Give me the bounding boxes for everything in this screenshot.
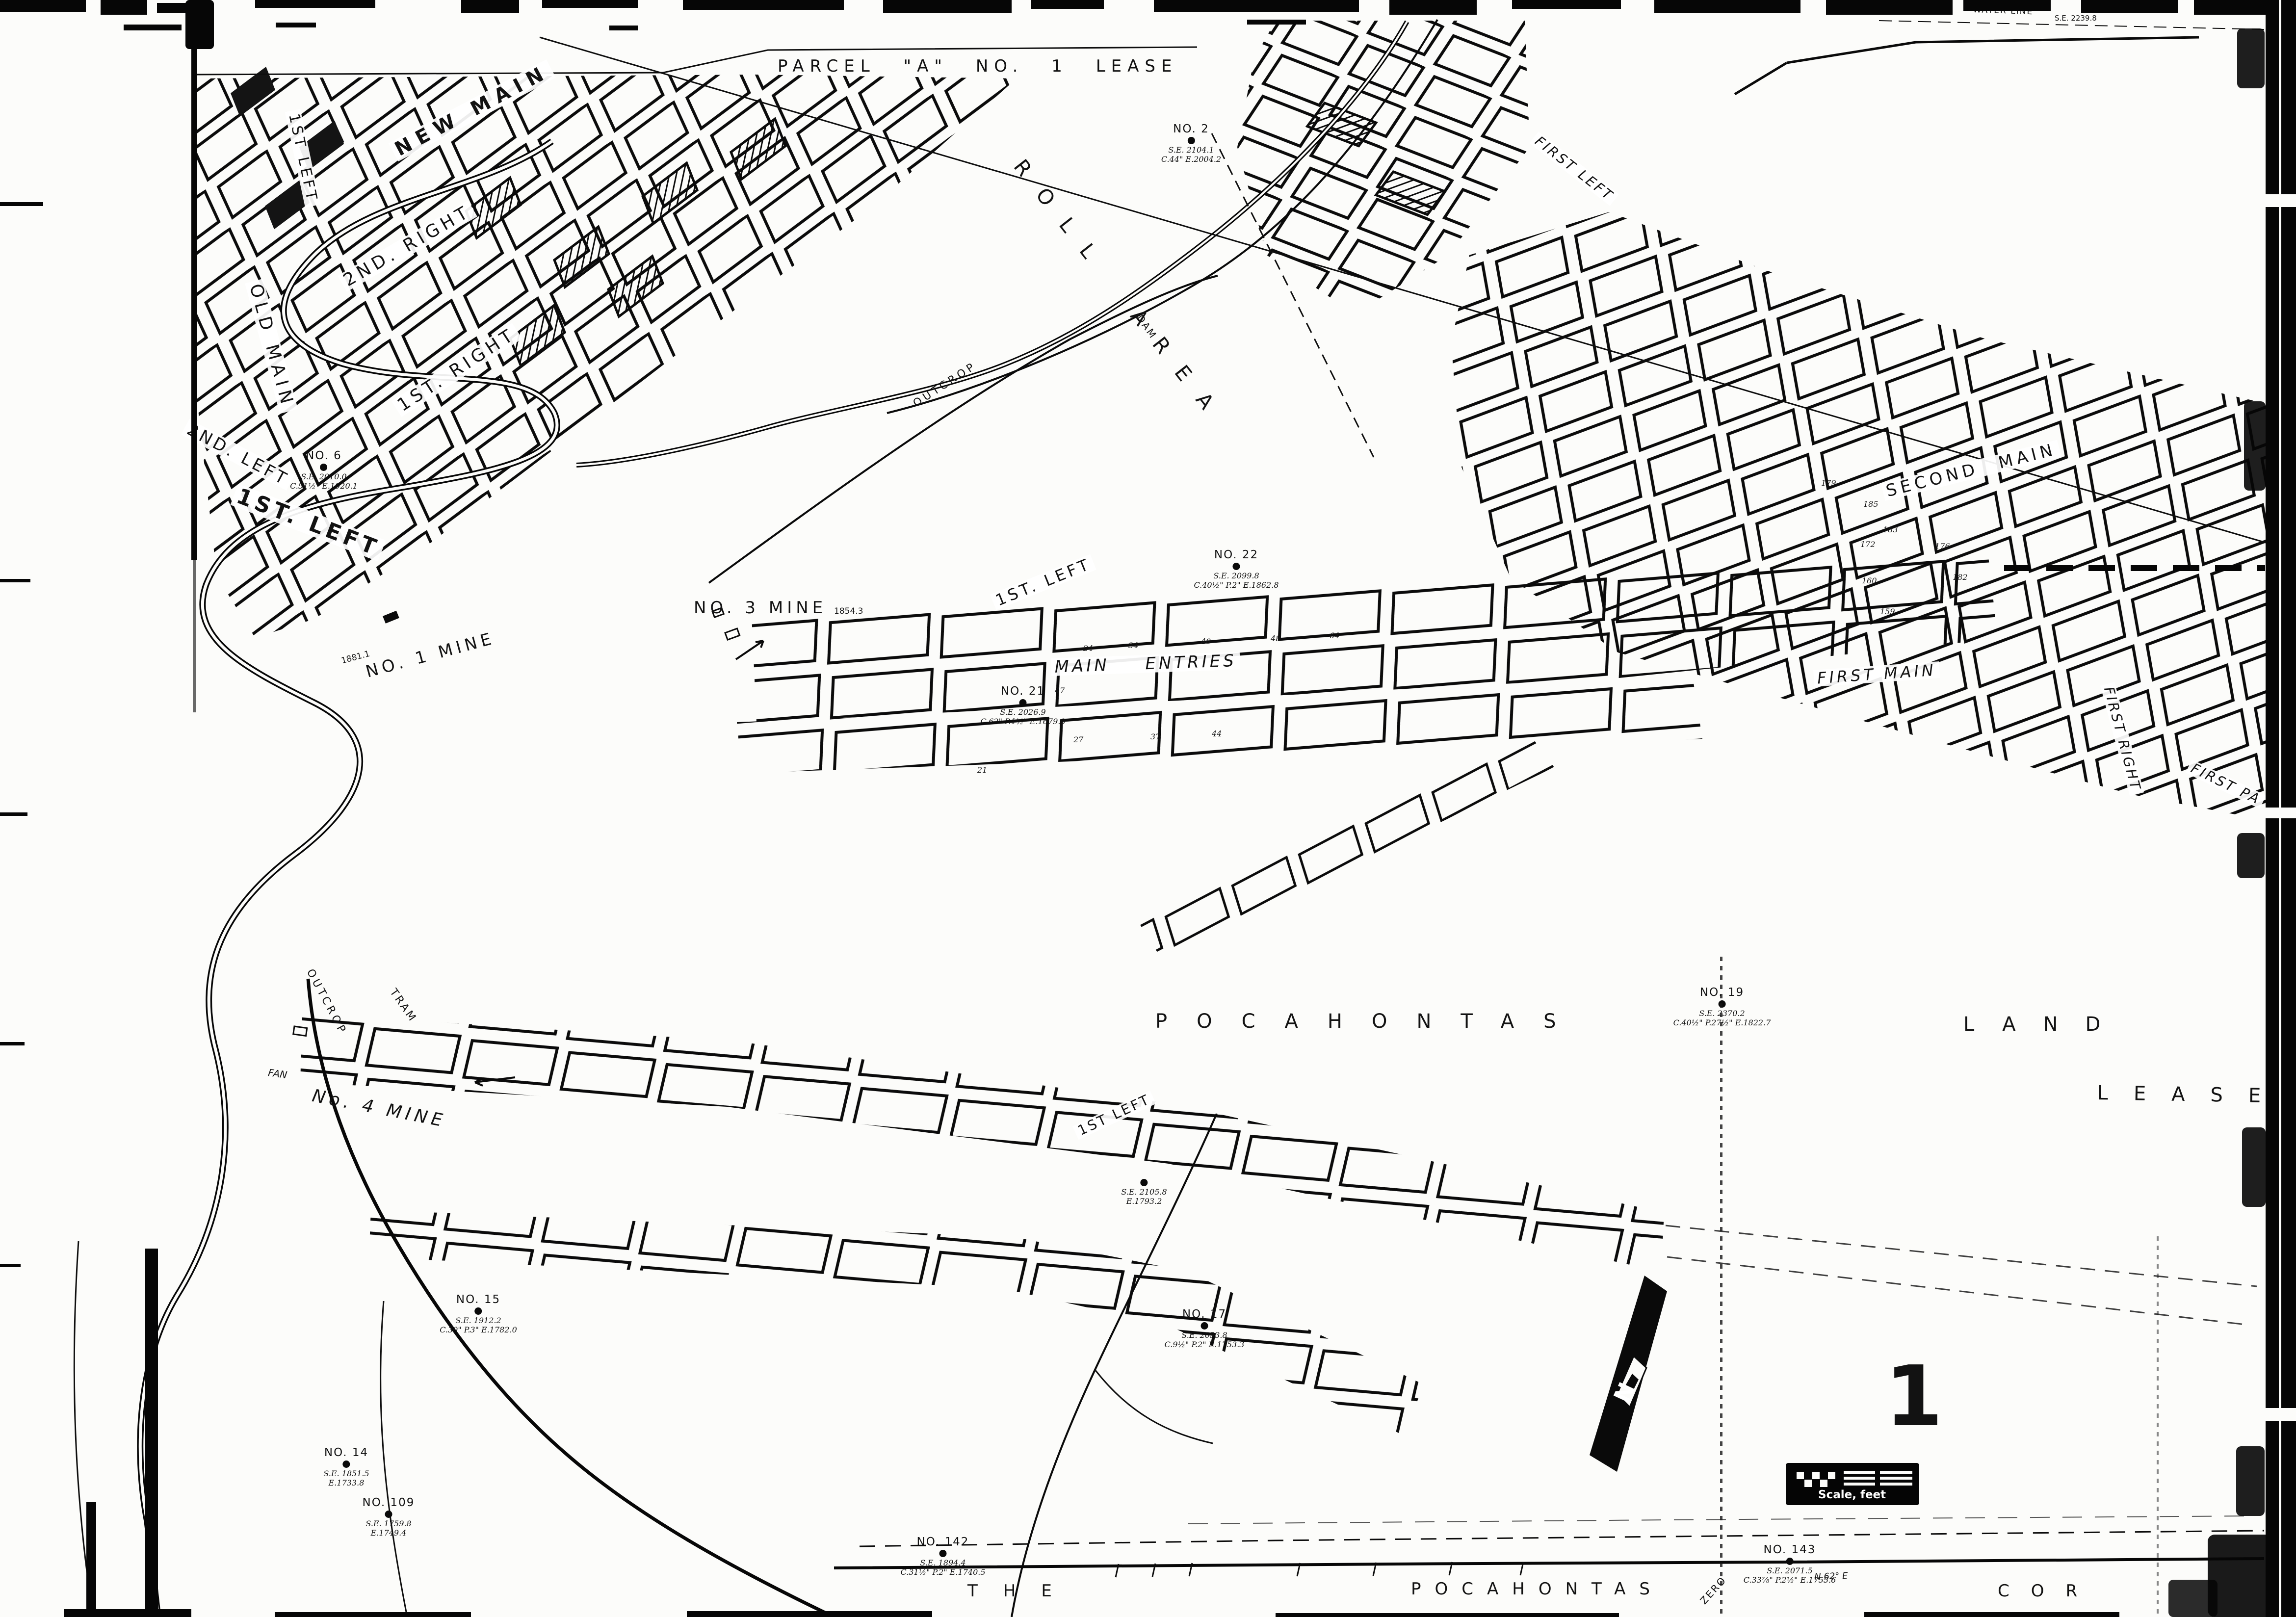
- scan-artifact-bottom-left-bar: [86, 1502, 96, 1617]
- north-arrow: [1590, 1276, 1667, 1472]
- pillar-number: 44: [1212, 729, 1222, 738]
- direction-arrows: [475, 641, 763, 1086]
- bottom-title-cor: COR: [1998, 1583, 2099, 1599]
- scan-artifact-left-bar: [191, 0, 197, 560]
- borehole-elevation: S.E. 2104.1: [1161, 145, 1221, 155]
- scan-artifact-top: [101, 0, 147, 15]
- tram-lines: [1012, 1114, 1217, 1617]
- pillar-number: 179: [1821, 478, 1836, 488]
- pillar-number: 40: [1201, 637, 1211, 646]
- pillar-number: 185: [1863, 499, 1879, 509]
- borehole-elevation: S.E. 1851.5: [323, 1469, 369, 1478]
- buildings: [293, 608, 740, 1036]
- borehole-elevation: S.E. 2099.8: [1194, 571, 1278, 580]
- fold-tick: [0, 202, 43, 206]
- scan-artifact-top: [683, 0, 844, 10]
- borehole-name: NO. 142: [900, 1536, 985, 1548]
- scan-artifact-right-blob: [2242, 1127, 2266, 1207]
- scan-artifact-dash: [124, 25, 182, 30]
- borehole-seam: E.1793.2: [1121, 1197, 1167, 1206]
- pillar-number: 172: [1860, 540, 1876, 549]
- scan-artifact-top: [1389, 0, 1477, 15]
- scan-artifact-top: [1031, 0, 1104, 9]
- scan-artifact-right-blob: [2236, 1446, 2265, 1516]
- fold-tick: [0, 1042, 25, 1045]
- scan-artifact-top: [1512, 0, 1621, 9]
- borehole-dot-icon: [320, 464, 327, 471]
- borehole-seam: C.30" P.3" E.1782.0: [440, 1325, 517, 1334]
- borehole-no2: NO. 2 S.E. 2104.1 C.44" E.2004.2: [1161, 123, 1221, 164]
- scan-artifact-right-blob: [2237, 28, 2265, 88]
- scan-artifact-top: [542, 0, 638, 8]
- scan-artifact-top: [0, 0, 86, 12]
- scan-artifact-dash: [609, 26, 638, 30]
- borehole-seam: C.31½" P.2" E.1740.5: [900, 1567, 985, 1577]
- borehole-elevation: S.E. 2105.8: [1121, 1187, 1167, 1197]
- scan-artifact-top: [185, 0, 214, 49]
- scan-artifact-dash: [276, 23, 316, 27]
- scan-artifact-corner-blob: [2208, 1535, 2296, 1617]
- bottom-title-the: THE: [967, 1583, 1077, 1599]
- borehole-name: NO. 2: [1161, 123, 1221, 135]
- borehole-dot-icon: [385, 1511, 392, 1518]
- fold-crease-vertical: [2157, 1236, 2159, 1617]
- borehole-elevation: S.E. 2053.8: [1165, 1330, 1245, 1340]
- map-linework: [0, 0, 2296, 1617]
- borehole-dot-icon: [343, 1461, 350, 1468]
- borehole-name: NO. 22: [1194, 548, 1278, 561]
- scan-artifact-right-blob: [2244, 401, 2266, 491]
- fold-crease-vertical: [1720, 957, 1722, 1617]
- fold-tick: [0, 812, 27, 816]
- borehole-elevation: S.E. 2010.0: [290, 472, 358, 481]
- scan-artifact-bottom: [64, 1609, 191, 1617]
- borehole-seam: E.1733.8: [323, 1478, 369, 1487]
- scan-artifact-top: [157, 3, 187, 13]
- borehole-dot-icon: [474, 1307, 482, 1315]
- pillar-number: 21: [977, 765, 987, 775]
- borehole-name: NO. 17: [1165, 1308, 1245, 1321]
- borehole-elevation: S.E. 2026.9: [980, 707, 1065, 717]
- sheet-number: 1: [1885, 1355, 1943, 1438]
- borehole-no15: NO. 15 S.E. 1912.2 C.30" P.3" E.1782.0: [440, 1293, 517, 1334]
- borehole-no143: NO. 143 S.E. 2071.5 C.33⅞" P.2½" E.1755.…: [1744, 1543, 1836, 1585]
- pillar-number: 37: [1150, 732, 1160, 741]
- fold-tick: [0, 1264, 21, 1267]
- borehole-dot-icon: [1201, 1322, 1208, 1330]
- borehole-seam: C.51½" E.1920.1: [290, 481, 358, 491]
- scan-artifact-top: [2194, 0, 2267, 15]
- borehole-name: NO. 15: [440, 1293, 517, 1306]
- mine-map-sheet: PARCEL "A" NO. 1 LEASE ROLL AREA WATER L…: [0, 0, 2296, 1617]
- borehole-elevation: S.E. 1759.8: [363, 1519, 415, 1528]
- pillar-number: 27: [1073, 735, 1083, 744]
- borehole-seam: E.1749.4: [363, 1528, 415, 1538]
- borehole-no109: NO. 109 S.E. 1759.8 E.1749.4: [363, 1496, 415, 1538]
- scan-artifact-bottom-left-bar: [145, 1249, 158, 1617]
- parcel-lease-title: PARCEL "A" NO. 1 LEASE: [778, 58, 1177, 75]
- scan-artifact-top: [1963, 0, 2051, 11]
- borehole-name: NO. 21: [980, 685, 1065, 698]
- borehole-dot-icon: [1233, 563, 1240, 570]
- scan-artifact-bottom: [1276, 1613, 1619, 1617]
- scan-artifact-right-gap: [2266, 1408, 2296, 1421]
- mine-no3-label: NO. 3 MINE: [694, 600, 827, 616]
- borehole-no17: NO. 17 S.E. 2053.8 C.9½" P.2" E.1753.3: [1165, 1308, 1245, 1349]
- scale-bar-label: Scale, feet: [1818, 1489, 1886, 1501]
- borehole-name: NO. 143: [1744, 1543, 1836, 1556]
- borehole-name: NO. 14: [323, 1446, 369, 1459]
- borehole-elevation: S.E. 1912.2: [440, 1316, 517, 1325]
- scan-artifact-top: [1826, 0, 1953, 15]
- scan-artifact-bottom: [275, 1612, 471, 1617]
- borehole-seam: C.40½" P.2" E.1862.8: [1194, 580, 1278, 590]
- borehole-dot-icon: [1019, 699, 1027, 706]
- scan-artifact-bottom: [687, 1611, 932, 1617]
- scan-artifact-right-gap: [2266, 194, 2296, 207]
- scan-artifact-right-blob: [2237, 833, 2265, 878]
- borehole-no22: NO. 22 S.E. 2099.8 C.40½" P.2" E.1862.8: [1194, 548, 1278, 590]
- borehole-unnamed: S.E. 2105.8 E.1793.2: [1121, 1177, 1167, 1206]
- borehole-no142: NO. 142 S.E. 1894.4 C.31½" P.2" E.1740.5: [900, 1536, 985, 1577]
- scan-artifact-bottom: [1864, 1612, 2119, 1617]
- borehole-dot-icon: [1188, 137, 1195, 144]
- fold-crease-horizontal: [2004, 565, 2265, 571]
- pillar-number: 160: [1862, 576, 1877, 585]
- scan-artifact-top: [1654, 0, 1800, 13]
- scan-artifact-right-gap: [2266, 808, 2296, 818]
- bottom-title-pocahontas: POCAHONTAS: [1411, 1581, 1664, 1597]
- pillar-number: 24: [1083, 644, 1093, 653]
- pillar-number: 182: [1953, 573, 1968, 582]
- mine-no3-elevation: 1854.3: [834, 607, 863, 616]
- borehole-no21: NO. 21 S.E. 2026.9 C.62" P.1½" E.1679.8: [980, 685, 1065, 726]
- pillar-number: 159: [1880, 607, 1895, 616]
- pocahontas-land-text: POCAHONTAS: [1155, 1012, 1585, 1031]
- scan-artifact-top: [1154, 0, 1359, 12]
- pillar-number: 34: [1128, 641, 1138, 650]
- borehole-dot-icon: [1141, 1179, 1148, 1186]
- scan-artifact-left-bar: [193, 560, 196, 712]
- se-top-right-label: S.E. 2239.8: [2055, 15, 2097, 22]
- borehole-seam: C.33⅞" P.2½" E.1755.6: [1744, 1575, 1836, 1585]
- borehole-elevation: S.E. 2071.5: [1744, 1566, 1836, 1575]
- property-lines-bottom: [834, 1516, 2264, 1577]
- pillar-number: 64: [1330, 631, 1339, 640]
- scan-artifact-top: [461, 0, 519, 13]
- borehole-dot-icon: [1786, 1558, 1794, 1565]
- workings-no4-mine: [300, 1014, 1664, 1435]
- borehole-no14: NO. 14 S.E. 1851.5 E.1733.8: [323, 1446, 369, 1487]
- borehole-name: NO. 109: [363, 1496, 415, 1509]
- pillar-number: 176: [1935, 542, 1950, 551]
- borehole-dot-icon: [939, 1550, 947, 1557]
- scan-artifact-dash: [1247, 20, 1306, 25]
- mine-no4-fan-label: FAN: [267, 1068, 287, 1080]
- borehole-seam: C.44" E.2004.2: [1161, 155, 1221, 164]
- borehole-no6: NO. 6 S.E. 2010.0 C.51½" E.1920.1: [290, 449, 358, 491]
- land-text: LAND: [1963, 1015, 2128, 1034]
- pillar-number: 183: [1883, 525, 1898, 534]
- scan-artifact-top: [2081, 0, 2178, 13]
- borehole-elevation: S.E. 1894.4: [900, 1558, 985, 1567]
- borehole-seam: C.62" P.1½" E.1679.8: [980, 717, 1065, 726]
- scan-artifact-top: [255, 0, 375, 8]
- scan-artifact-top: [883, 0, 1012, 13]
- borehole-name: NO. 6: [290, 449, 358, 462]
- lease-text: LEASE: [2097, 1083, 2286, 1106]
- scan-artifact-corner-blob: [2168, 1580, 2218, 1617]
- workings-diagonal-entry: [1139, 737, 1554, 958]
- pillar-number: 48: [1271, 634, 1280, 643]
- fold-tick: [0, 579, 30, 582]
- borehole-seam: C.9½" P.2" E.1753.3: [1165, 1340, 1245, 1349]
